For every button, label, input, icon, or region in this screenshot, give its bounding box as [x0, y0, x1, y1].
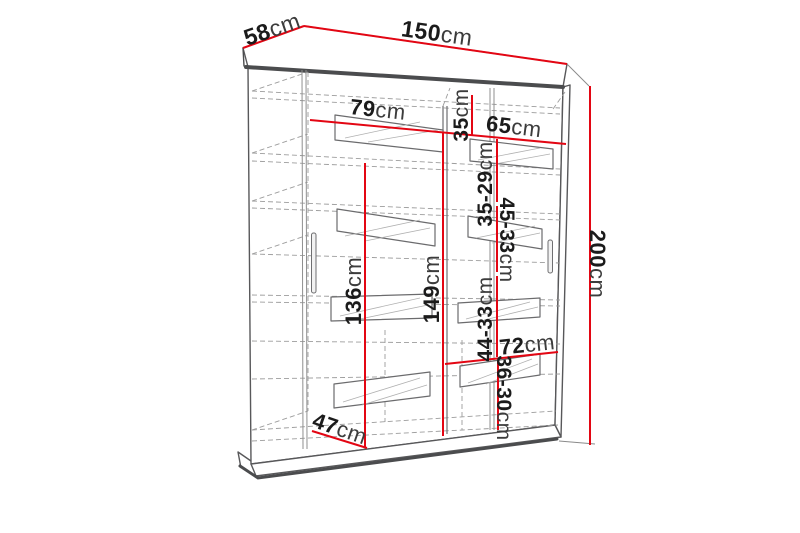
diagram-canvas: 58cm 150cm 79cm 65cm 35cm 35-29cm 45-33c…	[0, 0, 800, 533]
dim-top-right-gap-label: 35cm	[450, 88, 473, 141]
dim-right-gap-1-label: 35-29cm	[474, 141, 497, 226]
left-door-handle	[312, 233, 317, 293]
dim-right-gap-2-label: 45-33cm	[496, 197, 519, 282]
dim-center-interior-height-label: 149cm	[419, 255, 444, 324]
wardrobe-dimension-diagram: 58cm 150cm 79cm 65cm 35cm 35-29cm 45-33c…	[0, 0, 800, 533]
dim-right-gap-3-label: 44-33cm	[474, 276, 497, 361]
right-door-handle	[548, 240, 553, 273]
dim-left-interior-height-label: 136cm	[341, 257, 366, 326]
wardrobe-outline	[238, 26, 570, 476]
dim-right-gap-4-label: 36-30cm	[493, 355, 516, 440]
dim-total-height-label: 200cm	[586, 230, 611, 299]
